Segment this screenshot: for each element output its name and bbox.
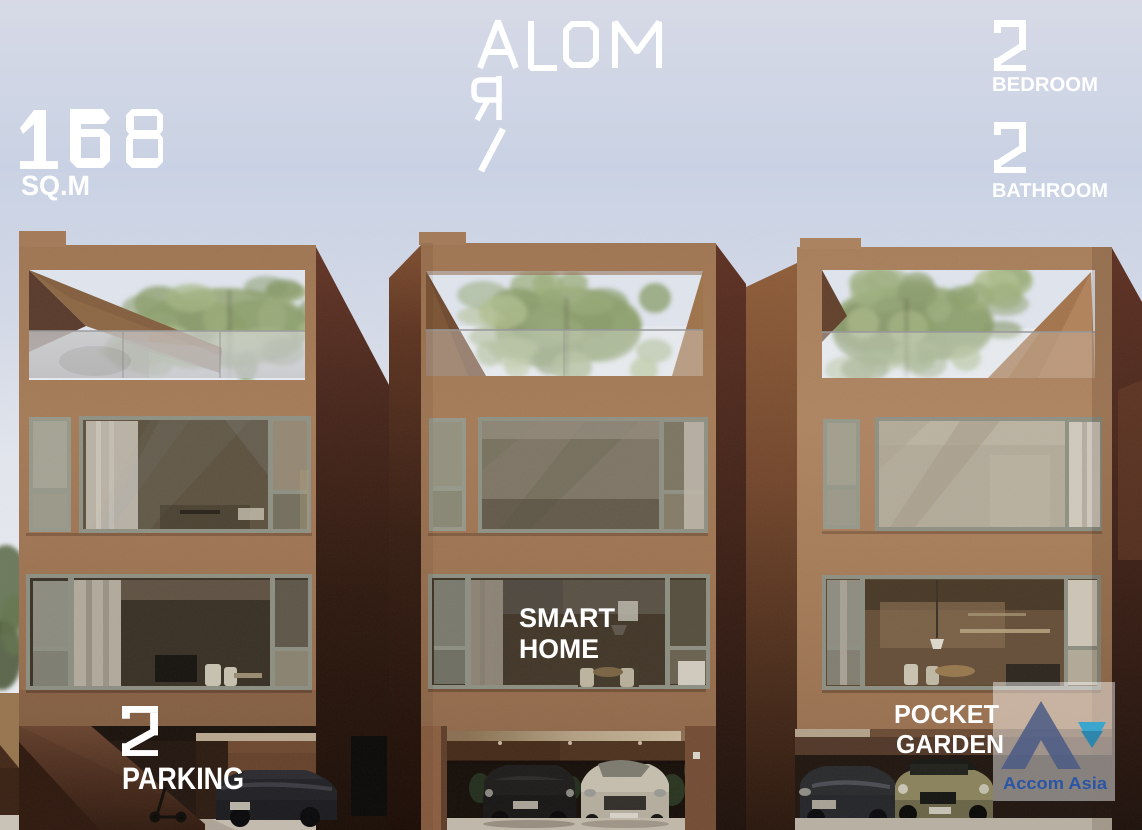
- svg-text:BATHROOM: BATHROOM: [992, 180, 1108, 202]
- svg-text:HOME: HOME: [519, 634, 599, 664]
- svg-text:SMART: SMART: [519, 603, 615, 633]
- svg-text:GARDEN: GARDEN: [896, 729, 1004, 759]
- svg-text:BEDROOM: BEDROOM: [992, 74, 1098, 96]
- svg-text:POCKET: POCKET: [894, 699, 999, 729]
- svg-text:Accom Asia: Accom Asia: [1003, 774, 1108, 793]
- svg-text:SQ.M: SQ.M: [21, 170, 90, 201]
- svg-text:PARKING: PARKING: [122, 761, 244, 796]
